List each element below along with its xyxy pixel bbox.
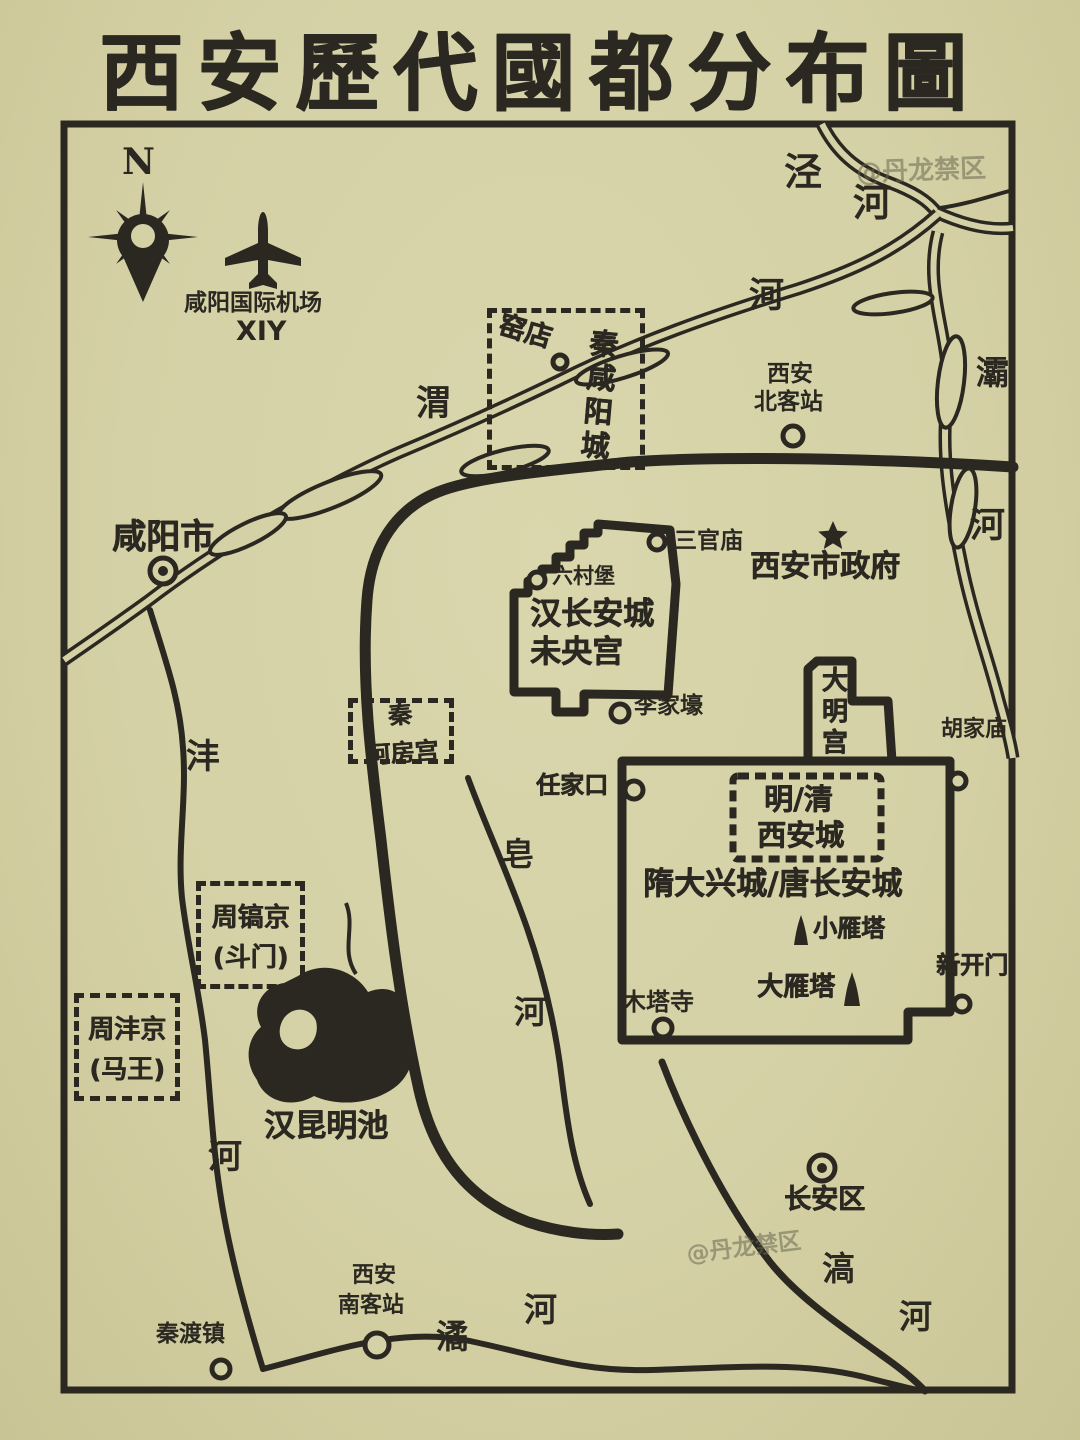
kunming-lake-inlet [346,903,356,974]
feng-river-label-1: 沣 [186,740,220,776]
lijiahao-marker [611,704,629,722]
xianyang-city-label: 咸阳市 [112,520,214,556]
hao-river-label-1: 滈 [822,1252,855,1287]
jue-river-label-2: 河 [524,1293,557,1328]
jing-river-label-2: 河 [853,183,891,223]
hujiamiao-marker [950,773,966,789]
airport-code-label: XIY [236,318,286,346]
zhou-fengjing-label-line2: (马王) [89,1049,165,1086]
changan-district-label: 长安区 [784,1186,865,1214]
han-changan-label-1: 汉长安城 [530,598,654,631]
zao-river-label-2: 河 [514,996,546,1030]
north-station-marker [783,426,803,446]
feng-river [150,610,263,1369]
ming-qing-label-2: 西安城 [757,820,844,850]
zhou-haojing-label-line2: (斗门) [213,937,289,974]
liucunbu-label: 六村堡 [552,565,615,587]
compass-rose-icon [88,182,198,302]
south-station-marker [365,1333,389,1357]
xiaoyanta-label: 小雁塔 [813,916,885,941]
renjiakou-label: 任家口 [536,773,608,798]
xinkaimen-label: 新开门 [936,953,1008,978]
zhou-fengjing-label-line1: 周沣京 [88,1009,166,1046]
daming-palace-label: 大明宫 [818,666,845,759]
qin-epang-label-line1: 秦 [386,694,412,731]
liucunbu-marker [529,572,545,588]
ba-river-label-1: 灞 [976,356,1009,391]
airplane-icon [225,212,301,289]
compass-north-label: N [122,144,155,182]
jue-river-label-1: 潏 [436,1320,469,1355]
sanguanmiao-label: 三官庙 [674,529,743,553]
ming-qing-label-1: 明/清 [764,784,833,814]
small-pagoda-icon [794,915,808,945]
mutasi-label: 木塔寺 [622,990,694,1015]
zhou-fengjing-capital-box: 周沣京 (马王) [74,993,180,1101]
zhou-haojing-capital-box: 周镐京 (斗门) [196,881,305,989]
map-canvas [0,0,1080,1440]
xinkaimen-marker [954,996,970,1012]
north-station-label-1: 西安 [767,362,813,386]
north-station-label-2: 北客站 [754,390,823,414]
wei-river-label-2: 河 [749,278,784,315]
qin-epang-label-line2: 阿房宫 [365,730,439,770]
airport-name-label: 咸阳国际机场 [184,291,322,315]
sui-tang-label: 隋大兴城/唐长安城 [643,868,902,901]
map-page: 西安歷代國都分布圖 [0,0,1080,1440]
dayanta-label: 大雁塔 [757,974,835,1001]
mutasi-marker [654,1019,672,1037]
south-station-label-1: 西安 [352,1264,396,1287]
han-changan-label-2: 未央宫 [530,636,623,669]
gov-label: 西安市政府 [750,551,900,583]
wei-river-label-1: 渭 [416,386,451,423]
jing-river-label-1: 泾 [784,152,822,192]
hujiamiao-label: 胡家庙 [941,718,1007,741]
jue-river [263,1337,917,1390]
qin-epang-capital-box: 秦 阿房宫 [348,698,454,764]
renjiakou-marker [625,781,643,799]
qindu-label: 秦渡镇 [156,1322,225,1346]
sanguanmiao-marker [649,534,665,550]
big-pagoda-icon [844,972,860,1006]
hao-river-label-2: 河 [899,1300,932,1335]
kunming-lake-label: 汉昆明池 [264,1110,388,1143]
zhou-haojing-label-line1: 周镐京 [211,897,289,934]
qindu-marker [212,1360,230,1378]
feng-river-label-2: 河 [208,1140,242,1176]
xianyang-city-marker [150,558,176,584]
lijiahao-label: 李家壕 [634,694,703,718]
zao-river-label-1: 皂 [502,838,534,872]
south-station-label-2: 南客站 [338,1294,404,1317]
wei-river-east [936,190,1013,229]
government-star-icon [818,521,848,549]
ba-river-label-2: 河 [970,508,1005,545]
changan-district-marker [809,1155,835,1181]
